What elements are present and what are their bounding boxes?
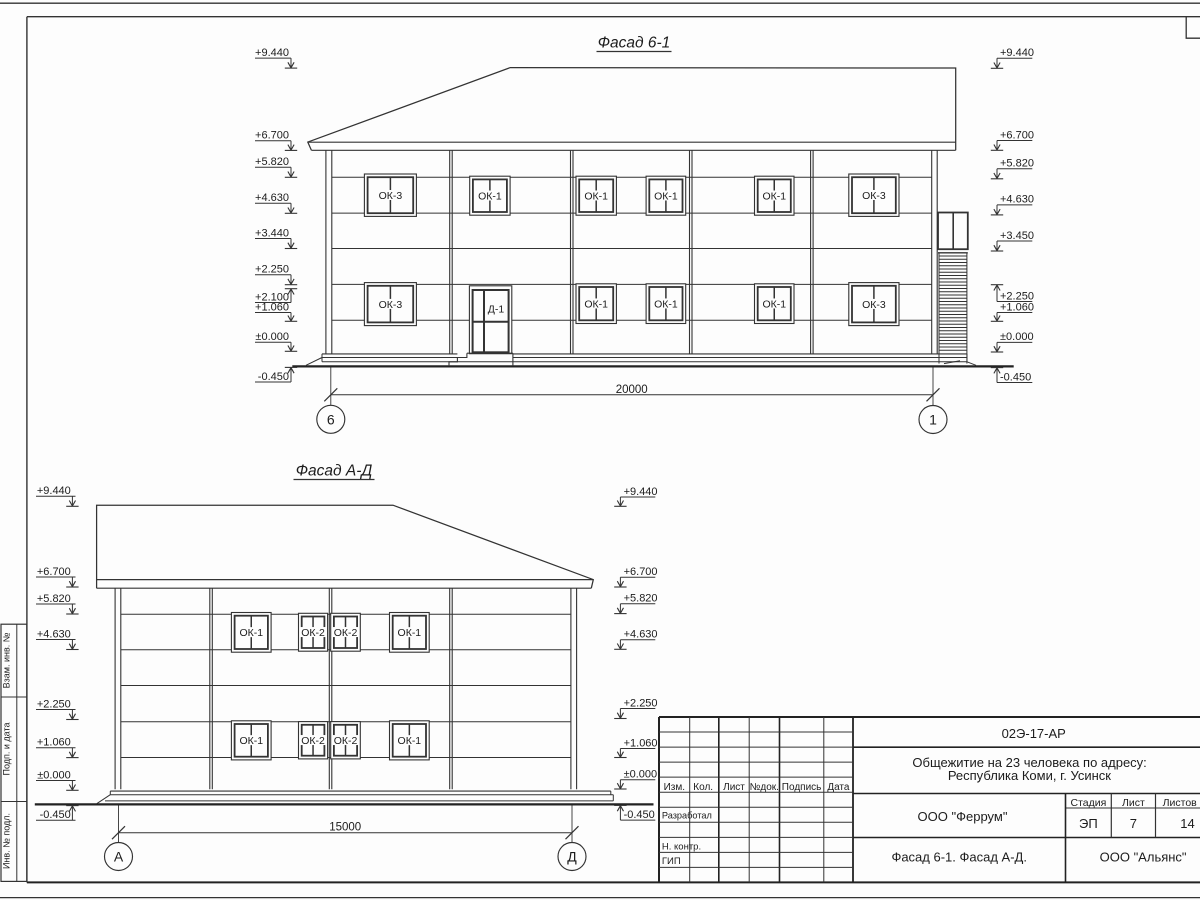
svg-text:ОК-2: ОК-2 (334, 627, 358, 639)
svg-text:+4.630: +4.630 (1000, 194, 1034, 206)
svg-text:+5.820: +5.820 (37, 593, 71, 605)
svg-text:ОК-3: ОК-3 (862, 299, 886, 311)
svg-text:ООО "Альянс": ООО "Альянс" (1100, 850, 1187, 865)
svg-text:Н. контр.: Н. контр. (662, 841, 701, 852)
svg-text:+6.700: +6.700 (255, 130, 289, 142)
svg-text:02Э-17-АР: 02Э-17-АР (1002, 726, 1066, 741)
svg-text:-0.450: -0.450 (624, 809, 655, 821)
svg-text:№док.: №док. (750, 782, 779, 793)
svg-text:+9.440: +9.440 (624, 486, 658, 498)
svg-text:+9.440: +9.440 (255, 47, 289, 59)
svg-text:ОК-1: ОК-1 (398, 735, 422, 747)
svg-text:+3.450: +3.450 (1000, 230, 1034, 242)
svg-text:±0.000: ±0.000 (255, 331, 289, 343)
svg-text:+5.820: +5.820 (624, 593, 658, 605)
svg-text:14: 14 (1180, 816, 1194, 831)
svg-text:ОК-2: ОК-2 (334, 735, 358, 747)
svg-text:Лист: Лист (723, 782, 745, 793)
svg-text:Инв. № подл.: Инв. № подл. (2, 813, 12, 869)
svg-text:1: 1 (929, 412, 937, 428)
svg-text:+5.820: +5.820 (1000, 158, 1034, 170)
svg-text:+1.060: +1.060 (37, 737, 71, 749)
svg-text:ОК-1: ОК-1 (398, 627, 422, 639)
svg-text:-0.450: -0.450 (258, 371, 289, 383)
svg-text:+6.700: +6.700 (624, 566, 658, 578)
svg-text:Д-1: Д-1 (488, 304, 505, 316)
svg-text:±0.000: ±0.000 (1000, 331, 1034, 343)
svg-text:ОК-1: ОК-1 (654, 191, 678, 203)
svg-text:+2.250: +2.250 (255, 264, 289, 276)
svg-text:+2.250: +2.250 (624, 697, 658, 709)
svg-text:Взам. инв. №: Взам. инв. № (2, 632, 12, 688)
svg-text:+3.440: +3.440 (255, 227, 289, 239)
svg-text:+2.250: +2.250 (37, 698, 71, 710)
svg-text:Подп. и дата: Подп. и дата (2, 722, 12, 775)
svg-text:+9.440: +9.440 (1000, 47, 1034, 59)
svg-text:Д: Д (567, 849, 577, 865)
svg-text:Стадия: Стадия (1071, 797, 1107, 809)
svg-text:ОК-1: ОК-1 (239, 735, 263, 747)
svg-text:+1.060: +1.060 (624, 737, 658, 749)
svg-text:+1.060: +1.060 (255, 301, 289, 313)
svg-text:7: 7 (1130, 816, 1137, 831)
svg-text:ОК-1: ОК-1 (239, 627, 263, 639)
svg-text:+4.630: +4.630 (624, 629, 658, 641)
svg-text:ЭП: ЭП (1079, 816, 1098, 831)
svg-text:+6.700: +6.700 (37, 566, 71, 578)
svg-text:ОК-3: ОК-3 (379, 190, 403, 202)
svg-text:ОК-1: ОК-1 (762, 191, 786, 203)
svg-text:Фасад 6-1. Фасад А-Д.: Фасад 6-1. Фасад А-Д. (891, 850, 1027, 865)
svg-text:+6.700: +6.700 (1000, 129, 1034, 141)
svg-text:ОК-1: ОК-1 (478, 191, 502, 203)
svg-text:ОК-1: ОК-1 (584, 191, 608, 203)
svg-text:Республика Коми, г. Усинск: Республика Коми, г. Усинск (948, 768, 1111, 783)
svg-text:6: 6 (327, 411, 335, 427)
svg-text:ООО "Феррум": ООО "Феррум" (918, 809, 1008, 824)
svg-text:ГИП: ГИП (662, 856, 681, 867)
svg-text:ОК-3: ОК-3 (862, 190, 886, 202)
svg-text:-0.450: -0.450 (1000, 371, 1031, 383)
svg-text:20000: 20000 (616, 384, 648, 396)
svg-text:Фасад 6-1: Фасад 6-1 (598, 35, 671, 52)
svg-text:+4.630: +4.630 (255, 192, 289, 204)
svg-text:ОК-2: ОК-2 (301, 627, 325, 639)
svg-text:+1.060: +1.060 (1000, 301, 1034, 313)
svg-text:Дата: Дата (827, 782, 850, 793)
svg-text:-0.450: -0.450 (40, 809, 71, 821)
svg-text:+4.630: +4.630 (37, 628, 71, 640)
svg-text:Листов: Листов (1163, 797, 1198, 809)
svg-text:Кол.: Кол. (693, 782, 713, 793)
svg-text:ОК-1: ОК-1 (762, 298, 786, 310)
svg-text:А: А (114, 849, 124, 865)
svg-text:Лист: Лист (1122, 797, 1145, 809)
svg-text:Подпись: Подпись (782, 782, 822, 793)
svg-text:±0.000: ±0.000 (37, 769, 71, 781)
svg-text:ОК-3: ОК-3 (379, 299, 403, 311)
svg-text:Фасад А-Д: Фасад А-Д (296, 463, 373, 480)
svg-text:ОК-1: ОК-1 (584, 298, 608, 310)
svg-text:+9.440: +9.440 (37, 485, 71, 497)
svg-text:15000: 15000 (329, 822, 361, 834)
svg-text:ОК-1: ОК-1 (654, 298, 678, 310)
svg-text:Изм.: Изм. (664, 782, 685, 793)
svg-text:Разработал: Разработал (662, 810, 712, 820)
svg-text:+5.820: +5.820 (255, 156, 289, 168)
svg-text:ОК-2: ОК-2 (301, 735, 325, 747)
svg-text:±0.000: ±0.000 (624, 769, 658, 781)
